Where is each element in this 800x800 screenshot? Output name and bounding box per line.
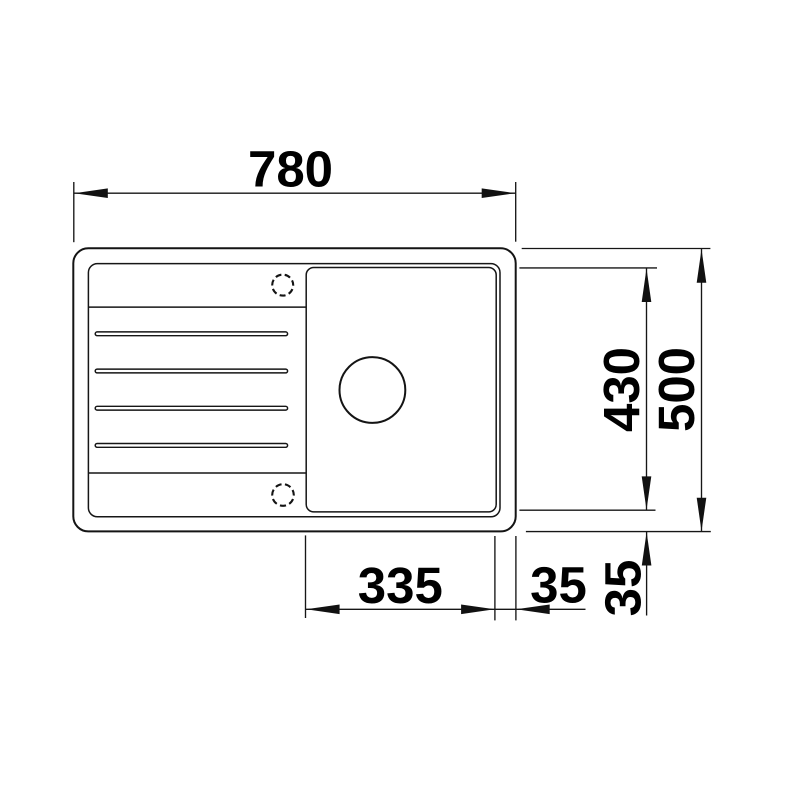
svg-text:430: 430: [593, 347, 650, 432]
svg-text:35: 35: [530, 557, 587, 614]
svg-text:335: 335: [358, 557, 443, 614]
svg-text:35: 35: [595, 560, 652, 617]
svg-text:780: 780: [248, 141, 333, 198]
svg-text:500: 500: [648, 347, 705, 432]
